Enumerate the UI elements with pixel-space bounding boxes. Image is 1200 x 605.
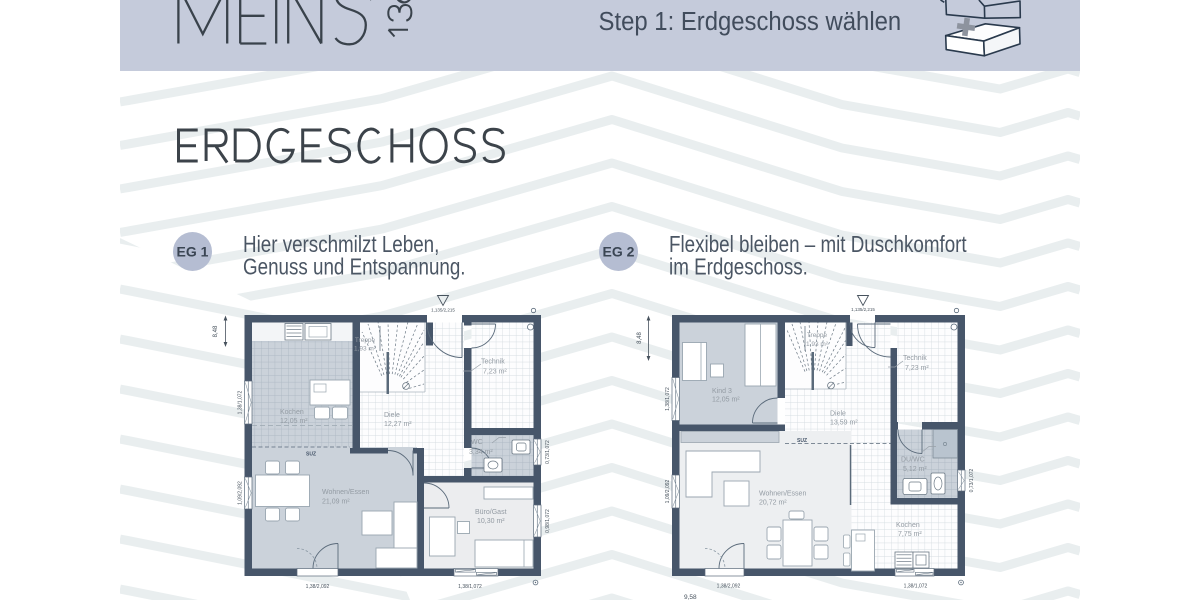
svg-text:WC: WC <box>471 439 483 446</box>
svg-text:Treppe: Treppe <box>807 332 828 339</box>
svg-text:1,38/1,072: 1,38/1,072 <box>238 390 244 414</box>
svg-text:10,30 m²: 10,30 m² <box>477 518 505 525</box>
svg-text:SUZ: SUZ <box>306 452 316 458</box>
svg-text:8,48: 8,48 <box>213 325 219 337</box>
svg-text:1,38/1,072: 1,38/1,072 <box>665 387 671 411</box>
svg-text:12,05 m²: 12,05 m² <box>280 418 308 425</box>
svg-text:7,23 m²: 7,23 m² <box>483 369 507 376</box>
svg-text:12,05 m²: 12,05 m² <box>712 397 740 404</box>
svg-text:Diele: Diele <box>830 411 846 418</box>
svg-text:Wohnen/Essen: Wohnen/Essen <box>759 491 806 498</box>
svg-text:0,73/1,072: 0,73/1,072 <box>969 468 975 492</box>
svg-text:1,38/2,092: 1,38/2,092 <box>306 584 330 590</box>
svg-text:Diele: Diele <box>384 412 400 419</box>
svg-text:EG 2: EG 2 <box>603 244 635 260</box>
svg-text:Kochen: Kochen <box>896 522 920 529</box>
svg-text:1,93 m²: 1,93 m² <box>354 346 377 353</box>
svg-text:1,135/2,215: 1,135/2,215 <box>431 308 455 313</box>
svg-text:im Erdgeschoss.: im Erdgeschoss. <box>669 253 808 280</box>
svg-text:8,48: 8,48 <box>637 332 643 344</box>
svg-text:1,38/1,072: 1,38/1,072 <box>904 584 928 590</box>
svg-text:20,72 m²: 20,72 m² <box>759 500 787 507</box>
svg-text:21,09 m²: 21,09 m² <box>322 499 350 506</box>
svg-text:1,09/2,092: 1,09/2,092 <box>665 479 671 503</box>
svg-text:Kind 3: Kind 3 <box>712 388 732 395</box>
svg-text:Treppe: Treppe <box>355 337 376 344</box>
svg-text:3,34 m²: 3,34 m² <box>469 449 493 456</box>
svg-text:Technik: Technik <box>903 355 927 362</box>
svg-text:Step 1: Erdgeschoss wählen: Step 1: Erdgeschoss wählen <box>599 7 902 36</box>
svg-text:0,73/1,072: 0,73/1,072 <box>545 440 551 464</box>
svg-text:1,135/2,215: 1,135/2,215 <box>851 307 875 312</box>
svg-text:1,09/2,092: 1,09/2,092 <box>238 481 244 505</box>
svg-text:1,38/1,072: 1,38/1,072 <box>458 584 482 590</box>
svg-text:Genuss und Entspannung.: Genuss und Entspannung. <box>243 253 465 280</box>
svg-text:SUZ: SUZ <box>797 438 807 444</box>
svg-text:Kochen: Kochen <box>280 409 304 416</box>
svg-text:1,38/2,092: 1,38/2,092 <box>717 584 741 590</box>
svg-text:EG 1: EG 1 <box>177 244 209 260</box>
svg-text:9,58: 9,58 <box>684 594 697 600</box>
svg-text:7,75 m²: 7,75 m² <box>898 531 922 538</box>
svg-text:DU/WC: DU/WC <box>901 457 925 464</box>
svg-text:1,93 m²: 1,93 m² <box>806 341 829 348</box>
svg-text:Technik: Technik <box>481 359 505 366</box>
svg-text:13,59 m²: 13,59 m² <box>830 420 858 427</box>
svg-text:0,98/1,072: 0,98/1,072 <box>545 509 551 533</box>
svg-text:7,23 m²: 7,23 m² <box>905 365 929 372</box>
svg-text:5,12 m²: 5,12 m² <box>903 466 927 473</box>
svg-text:Büro/Gast: Büro/Gast <box>475 509 507 516</box>
svg-text:Wohnen/Essen: Wohnen/Essen <box>322 489 369 496</box>
svg-text:12,27 m²: 12,27 m² <box>384 421 412 428</box>
